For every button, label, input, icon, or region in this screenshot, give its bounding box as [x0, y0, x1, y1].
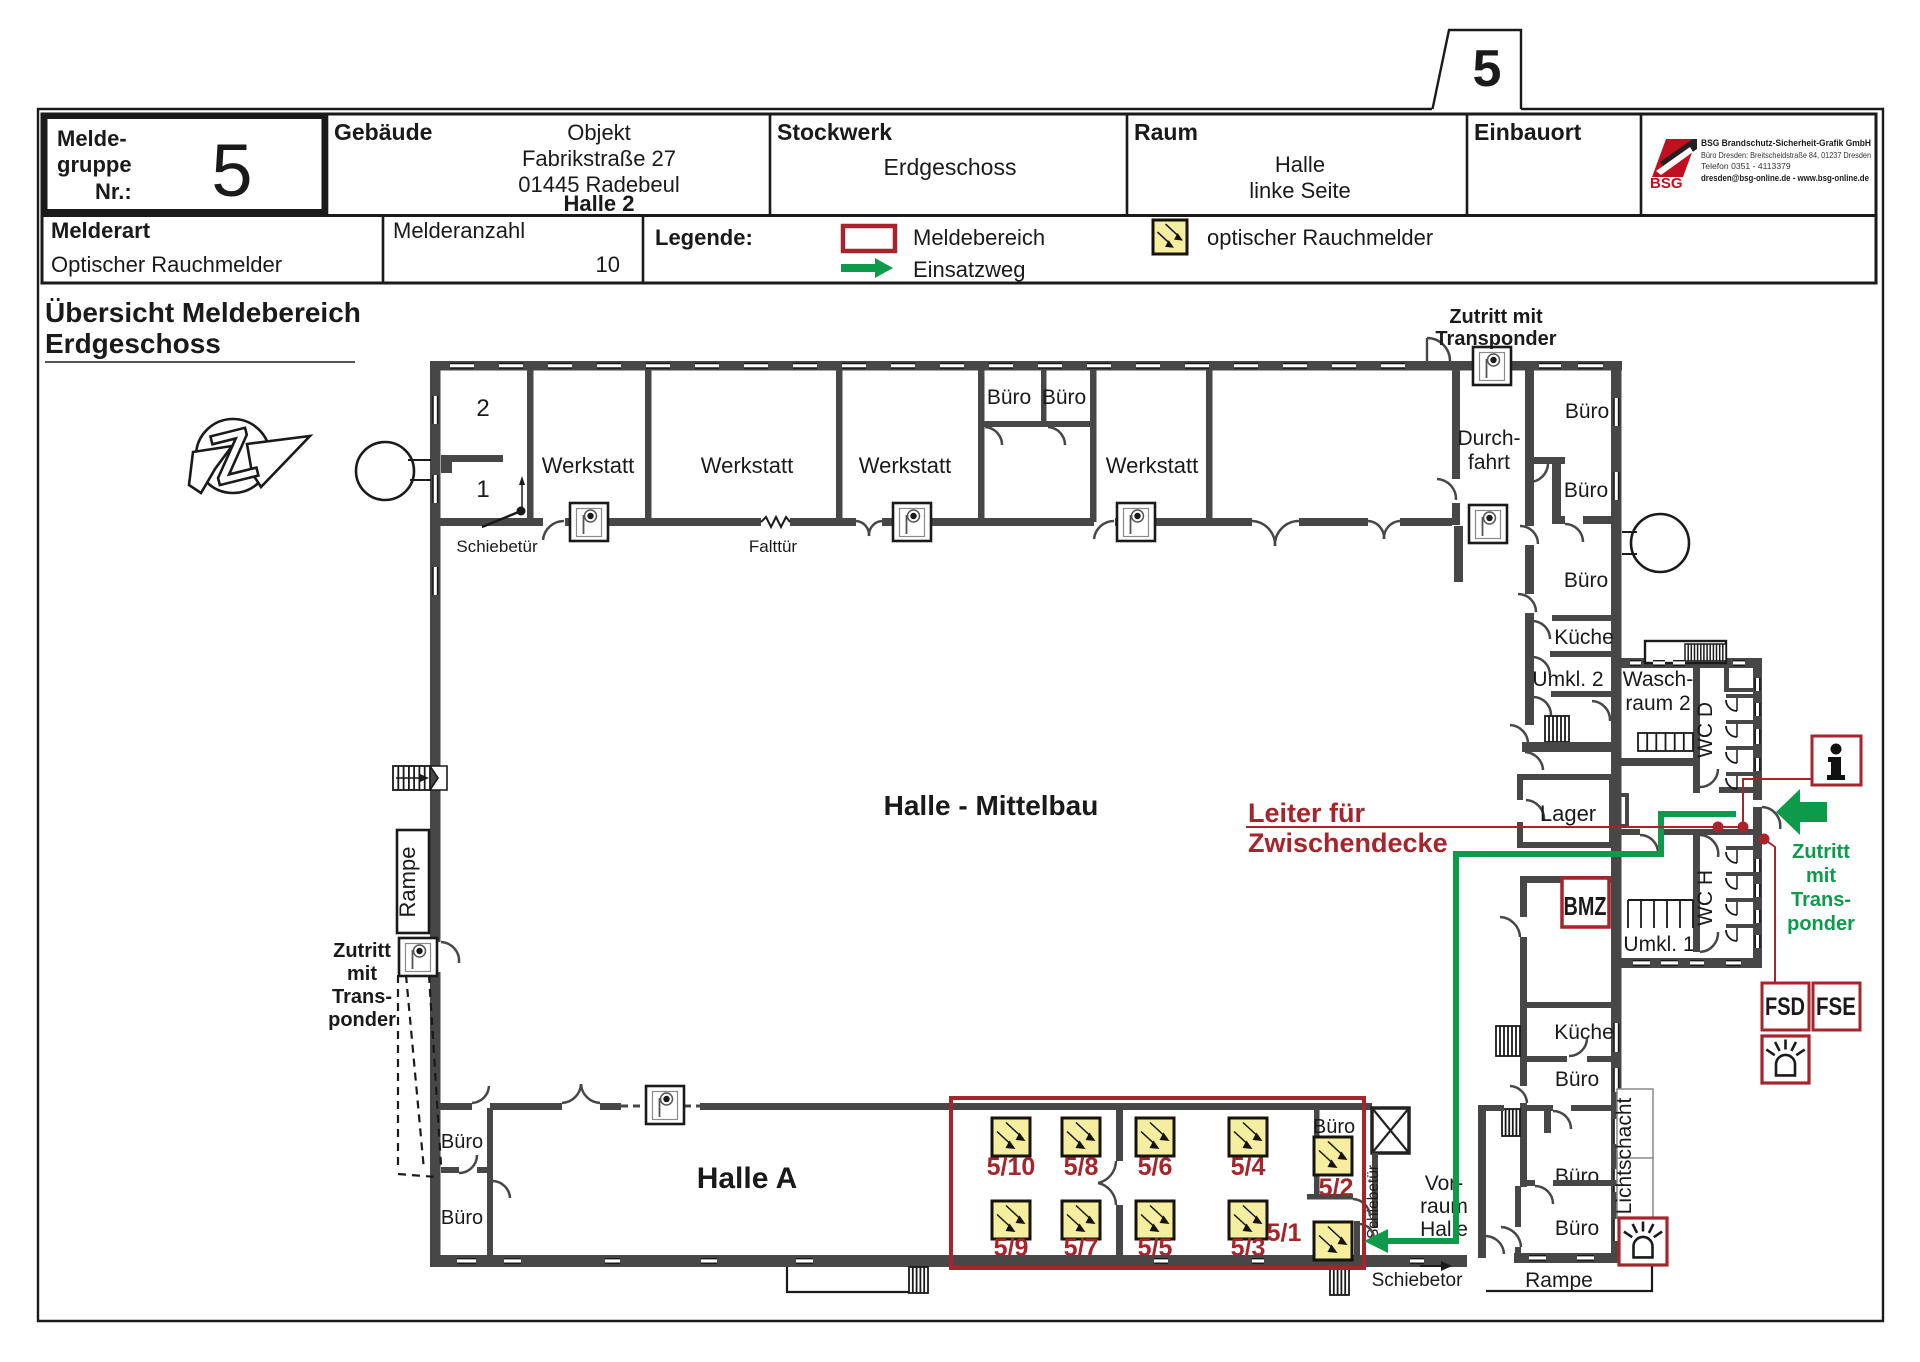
- svg-text:1: 1: [476, 476, 489, 503]
- svg-text:Büro: Büro: [1042, 386, 1086, 409]
- svg-text:mit: mit: [347, 963, 377, 985]
- svg-text:Stockwerk: Stockwerk: [777, 119, 892, 145]
- svg-text:Gebäude: Gebäude: [334, 119, 432, 145]
- svg-text:5/10: 5/10: [987, 1153, 1036, 1181]
- svg-text:5/8: 5/8: [1064, 1153, 1099, 1181]
- svg-text:raum: raum: [1420, 1195, 1468, 1218]
- svg-text:Büro: Büro: [1555, 1068, 1599, 1091]
- svg-text:mit: mit: [1806, 865, 1836, 887]
- svg-text:Durch-: Durch-: [1457, 427, 1520, 450]
- svg-text:FSE: FSE: [1816, 993, 1856, 1021]
- svg-text:5/9: 5/9: [994, 1234, 1029, 1262]
- svg-text:Leiter für: Leiter für: [1248, 798, 1366, 828]
- svg-text:BSG: BSG: [1650, 175, 1683, 192]
- svg-text:Erdgeschoss: Erdgeschoss: [884, 154, 1017, 180]
- svg-text:5/6: 5/6: [1138, 1153, 1173, 1181]
- svg-text:Büro: Büro: [441, 1131, 483, 1153]
- svg-text:Werkstatt: Werkstatt: [859, 453, 952, 478]
- svg-text:Büro: Büro: [987, 386, 1031, 409]
- svg-text:Falttür: Falttür: [749, 537, 798, 556]
- svg-text:Werkstatt: Werkstatt: [1106, 453, 1199, 478]
- svg-text:2: 2: [476, 395, 489, 422]
- svg-text:linke Seite: linke Seite: [1249, 178, 1351, 203]
- svg-text:Büro: Büro: [1564, 569, 1608, 592]
- svg-text:Nr.:: Nr.:: [95, 179, 132, 204]
- svg-text:Umkl. 2: Umkl. 2: [1532, 668, 1603, 691]
- svg-text:5/1: 5/1: [1267, 1219, 1302, 1247]
- svg-text:5/4: 5/4: [1231, 1153, 1266, 1181]
- svg-text:raum 2: raum 2: [1625, 692, 1690, 715]
- svg-text:Optischer Rauchmelder: Optischer Rauchmelder: [51, 252, 282, 277]
- svg-text:Zutritt: Zutritt: [333, 940, 391, 962]
- svg-text:Melderart: Melderart: [51, 218, 151, 243]
- svg-text:Büro: Büro: [1564, 479, 1608, 502]
- svg-text:Umkl. 1: Umkl. 1: [1623, 933, 1694, 956]
- svg-text:Halle A: Halle A: [697, 1162, 798, 1195]
- svg-text:Halle 2: Halle 2: [564, 191, 635, 216]
- svg-text:Übersicht Meldebereich: Übersicht Meldebereich: [45, 297, 361, 328]
- svg-text:Rampe: Rampe: [1525, 1269, 1593, 1292]
- svg-text:Schiebetor: Schiebetor: [1372, 1270, 1464, 1291]
- svg-text:Trans-: Trans-: [1791, 889, 1851, 911]
- svg-text:5/3: 5/3: [1231, 1234, 1266, 1262]
- svg-text:Lager: Lager: [1540, 801, 1596, 826]
- svg-text:Melderanzahl: Melderanzahl: [393, 218, 525, 243]
- svg-text:5/5: 5/5: [1138, 1234, 1173, 1262]
- svg-text:Einsatzweg: Einsatzweg: [913, 257, 1026, 282]
- svg-text:fahrt: fahrt: [1468, 451, 1510, 474]
- svg-text:Halle: Halle: [1420, 1218, 1468, 1241]
- svg-text:Objekt: Objekt: [567, 120, 631, 145]
- svg-text:Trans-: Trans-: [332, 986, 392, 1008]
- svg-text:Transponder: Transponder: [1435, 328, 1556, 350]
- svg-text:Halle: Halle: [1275, 152, 1325, 177]
- svg-text:Büro: Büro: [1565, 400, 1609, 423]
- svg-text:5: 5: [1473, 40, 1502, 98]
- svg-text:WC D: WC D: [1694, 702, 1717, 758]
- svg-text:Raum: Raum: [1134, 119, 1198, 145]
- svg-text:BMZ: BMZ: [1564, 891, 1607, 921]
- svg-text:Rampe: Rampe: [395, 847, 420, 918]
- svg-text:Zutritt mit: Zutritt mit: [1449, 306, 1543, 328]
- svg-text:Melde-: Melde-: [57, 126, 127, 151]
- svg-text:Lichtschacht: Lichtschacht: [1613, 1097, 1636, 1214]
- svg-text:Zutritt: Zutritt: [1792, 841, 1850, 863]
- svg-text:optischer Rauchmelder: optischer Rauchmelder: [1207, 225, 1433, 250]
- svg-text:10: 10: [596, 252, 620, 277]
- svg-text:WC H: WC H: [1694, 870, 1717, 926]
- svg-text:Legende:: Legende:: [655, 225, 753, 250]
- svg-text:Erdgeschoss: Erdgeschoss: [45, 328, 221, 359]
- svg-text:5/2: 5/2: [1319, 1174, 1354, 1202]
- svg-text:Büro: Büro: [441, 1207, 483, 1229]
- svg-text:Telefon 0351 - 4113379: Telefon 0351 - 4113379: [1701, 161, 1791, 171]
- svg-text:Werkstatt: Werkstatt: [542, 453, 635, 478]
- svg-text:Küche: Küche: [1554, 1021, 1614, 1044]
- svg-text:Küche: Küche: [1554, 626, 1614, 649]
- svg-text:Werkstatt: Werkstatt: [701, 453, 794, 478]
- svg-text:Fabrikstraße 27: Fabrikstraße 27: [522, 146, 676, 171]
- svg-text:BSG Brandschutz-Sicherheit-Gra: BSG Brandschutz-Sicherheit-Grafik GmbH: [1701, 138, 1871, 149]
- svg-text:Wasch-: Wasch-: [1623, 668, 1693, 691]
- svg-text:Meldebereich: Meldebereich: [913, 225, 1045, 250]
- svg-text:ponder: ponder: [328, 1009, 396, 1031]
- svg-text:Büro: Büro: [1313, 1116, 1355, 1138]
- svg-text:ponder: ponder: [1787, 913, 1855, 935]
- svg-text:dresden@bsg-online.de - www.bs: dresden@bsg-online.de - www.bsg-online.d…: [1701, 173, 1869, 184]
- svg-text:Schiebetür: Schiebetür: [456, 537, 538, 556]
- svg-text:Einbauort: Einbauort: [1474, 119, 1582, 145]
- svg-text:Büro: Büro: [1555, 1217, 1599, 1240]
- svg-text:5: 5: [211, 129, 252, 212]
- svg-text:Büro Dresden: Breitscheidstraß: Büro Dresden: Breitscheidstraße 84, 0123…: [1701, 150, 1871, 160]
- svg-text:gruppe: gruppe: [57, 152, 132, 177]
- svg-text:Halle - Mittelbau: Halle - Mittelbau: [884, 790, 1099, 821]
- svg-text:5/7: 5/7: [1064, 1234, 1099, 1262]
- svg-text:Zwischendecke: Zwischendecke: [1248, 828, 1448, 858]
- svg-text:FSD: FSD: [1765, 993, 1805, 1021]
